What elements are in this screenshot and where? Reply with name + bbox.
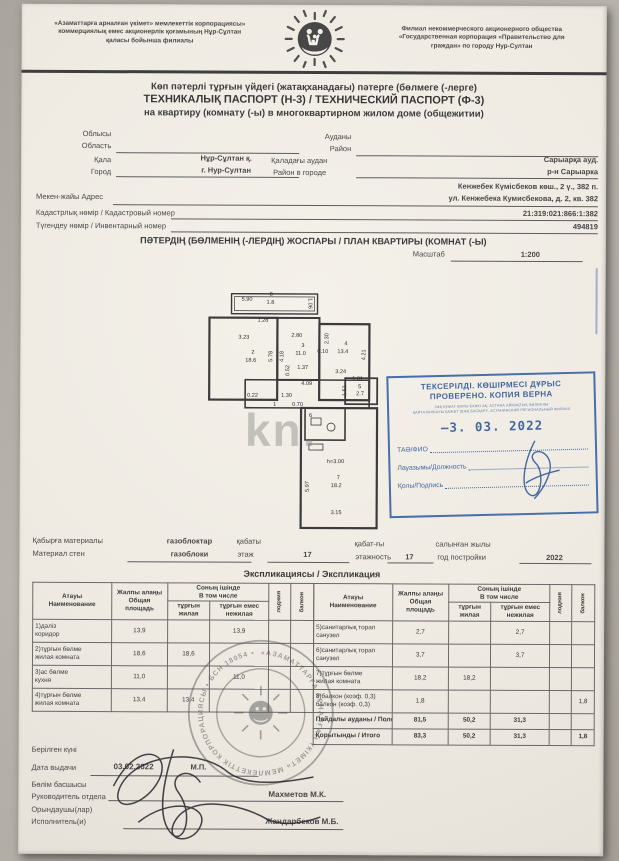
field-district-value-ru: р-н Сарыарка xyxy=(461,168,598,177)
stamp-signature-scribble xyxy=(505,432,567,503)
plan-dimension-label: 1.30 xyxy=(281,394,292,400)
field-address-value-ru: ул. Кенжебека Кумисбекова, д. 2, кв. 382 xyxy=(261,194,598,204)
plan-dimension-label: 4.21 xyxy=(362,349,368,360)
verification-stamp: ТЕКСЕРІЛДІ. КӨШІРМЕСІ ДҰРЫС ПРОВЕРЕНО. К… xyxy=(386,371,598,518)
cell-loggia xyxy=(549,667,572,690)
plan-dimension-label: 3.15 xyxy=(331,511,342,517)
floor-value: 17 xyxy=(267,551,347,560)
explication-header: Атауы Наименование Жалпы алаңы Общая пло… xyxy=(33,582,314,620)
scale-line xyxy=(451,261,583,263)
cell-nonliving xyxy=(490,667,549,690)
plan-dimension-label: 5.97 xyxy=(306,481,312,492)
plan-dimension-label: 3.24 xyxy=(335,370,346,376)
plan-dimension-label: h=3.00 xyxy=(327,460,344,466)
cell-nonliving: 31,3 xyxy=(490,713,549,729)
cell-total: 11,0 xyxy=(111,665,167,688)
wall-material-value-ru: газоблоки xyxy=(129,550,249,559)
year-label-kk: салынған жылы xyxy=(435,541,490,550)
header-divider xyxy=(22,70,607,75)
plan-dimension-label: 18.6 xyxy=(245,359,256,365)
year-line xyxy=(519,563,591,564)
cell-total: 81,5 xyxy=(392,713,448,729)
plan-dimension-label: 5 xyxy=(358,385,361,391)
field-city-value-ru: г. Нур-Султан xyxy=(161,166,291,175)
loggia-label: лоджия xyxy=(557,592,564,614)
cell-name: 1)дәліз коридор xyxy=(33,619,112,642)
plan-dimension-label: 0.10 xyxy=(317,350,328,356)
col-living-header: тұрғын жилая xyxy=(449,602,491,621)
field-cadastral-line xyxy=(171,218,598,221)
balcony-label: балкон xyxy=(299,592,306,612)
col-including-header: Соның ішінде В том числе xyxy=(449,584,550,603)
plan-dimension-label: 2 xyxy=(251,351,254,357)
col-balcony-header: балкон xyxy=(572,585,595,622)
field-city-label-kk: Қала xyxy=(31,156,111,165)
cell-living: 50,2 xyxy=(448,713,490,729)
stamp-date-dash: – xyxy=(441,420,450,435)
cell-living xyxy=(448,621,490,644)
cell-total: 2,7 xyxy=(392,621,448,644)
field-inventory-line xyxy=(171,231,598,234)
field-cadastral-label: Кадастрлық нөмір / Кадастровый номер xyxy=(36,209,175,218)
plan-dimension-label: 3.23 xyxy=(238,336,249,342)
handwritten-signatures xyxy=(78,734,378,850)
cell-loggia xyxy=(549,713,572,729)
cell-nonliving: 31,3 xyxy=(490,729,549,745)
cell-total: 1,8 xyxy=(392,690,448,713)
cell-total: 18,6 xyxy=(111,642,167,665)
cell-balcony xyxy=(572,713,595,729)
plan-dimension-label: 1.81 xyxy=(352,377,363,383)
explication-summary-row: Пайдалы ауданы / Полезная площадь81,550,… xyxy=(313,712,594,729)
field-district-label-kk: Қаладағы аудан xyxy=(271,157,327,166)
plan-dimension-label: 1.28 xyxy=(257,319,268,325)
cell-loggia xyxy=(549,644,572,667)
cell-total: 83,3 xyxy=(392,729,448,745)
scale-value: 1:200 xyxy=(521,251,540,260)
col-balcony-header: балкон xyxy=(291,583,314,620)
plan-dimension-label: 1.51 xyxy=(343,385,349,396)
explication-row: 5)санитарлық торап санузел2,72,7 xyxy=(314,620,595,644)
col-nonliving-header: тұрғын емес нежилая xyxy=(210,601,269,620)
plan-dimension-label: 4.18 xyxy=(280,351,286,362)
cell-living xyxy=(448,690,490,713)
field-raion-label-ru: Район xyxy=(291,145,351,154)
cell-nonliving xyxy=(490,690,549,713)
stamp-fio-label: ТАӘ/ФИО xyxy=(397,446,428,454)
field-raion-label-kk: Ауданы xyxy=(291,133,351,142)
cell-balcony: 1,8 xyxy=(572,729,595,745)
col-name-header: Атауы Наименование xyxy=(314,584,393,621)
kn-kz-watermark: kn. xyxy=(245,403,318,457)
cell-nonliving: 2,7 xyxy=(491,621,550,644)
org-name-russian: Филиал некоммерческого акционерного обще… xyxy=(367,25,597,51)
plan-dimension-label: 4.09 xyxy=(301,382,312,388)
field-district-label-ru: Район в городе xyxy=(273,169,326,178)
field-oblast-label-ru: Область xyxy=(31,142,111,151)
cell-living xyxy=(448,644,490,667)
gov-for-citizens-logo xyxy=(272,9,358,69)
field-city-line xyxy=(116,176,299,178)
blue-edge-mark xyxy=(595,268,597,334)
col-living-header: тұрғын жилая xyxy=(168,601,210,620)
cell-balcony xyxy=(572,667,595,690)
cell-loggia xyxy=(550,621,573,644)
cell-loggia xyxy=(549,690,572,713)
sun-family-hand-icon xyxy=(272,9,358,69)
explication-row: 7)тұрғын бөлме жилая комната18,218,2 xyxy=(313,666,594,690)
col-loggia-header: лоджия xyxy=(269,583,292,620)
field-address-line xyxy=(113,204,598,207)
document-title-ru: на квартиру (комнату (-ы) в многоквартир… xyxy=(21,107,606,121)
floors-line xyxy=(387,562,433,563)
floor-line xyxy=(267,562,349,563)
plan-dimension-label: 2.30 xyxy=(325,333,331,344)
field-city-label-ru: Город xyxy=(31,168,111,177)
cell-name: 4)тұрғын бөлме жилая комната xyxy=(32,688,111,711)
cell-total: 3,7 xyxy=(392,644,448,667)
cell-nonliving: 3,7 xyxy=(490,644,549,667)
col-total-header: Жалпы алаңы Общая площадь xyxy=(392,584,448,621)
loggia-label: лоджия xyxy=(276,591,283,613)
field-oblast-label-kk: Облысы xyxy=(31,130,111,139)
cell-name: 2)тұрғын бөлме жилая комната xyxy=(32,642,111,665)
plan-section-title: ПӘТЕРДІҢ (БӨЛМЕНІҢ (-ЛЕРДІҢ) ЖОСПАРЫ / П… xyxy=(21,235,606,248)
document-page: «Азаматтарға арналған үкімет» мемлекетті… xyxy=(18,4,607,857)
cell-balcony xyxy=(572,644,595,667)
col-name-header: Атауы Наименование xyxy=(33,582,112,619)
cell-loggia xyxy=(549,729,572,745)
plan-dimension-label: 13.4 xyxy=(337,350,348,356)
col-nonliving-header: тұрғын емес нежилая xyxy=(491,603,550,622)
cell-living: 18,2 xyxy=(448,667,490,690)
stamp-position-label: Лауазымы/Должность xyxy=(397,463,466,472)
plan-dimension-label: 4 xyxy=(344,342,347,348)
year-label-ru: год постройки xyxy=(437,554,486,563)
screenshot-root: «Азаматтарға арналған үкімет» мемлекетті… xyxy=(0,0,619,861)
cell-balcony xyxy=(572,621,595,644)
cell-total: 18,2 xyxy=(392,667,448,690)
cell-total: 13,4 xyxy=(111,688,167,711)
col-total-header: Жалпы алаңы Общая площадь xyxy=(111,583,167,620)
col-including-header: Соның ішінде В том числе xyxy=(168,583,269,602)
scale-label: Масштаб xyxy=(413,250,445,259)
plan-dimension-label: 18.2 xyxy=(331,484,342,490)
floor-label-ru: этаж xyxy=(237,551,253,560)
plan-dimension-label: 0.52 xyxy=(286,365,292,376)
issued-date-label-ru: Дата выдачи xyxy=(32,764,77,773)
plan-dimension-label: 1.8 xyxy=(267,301,275,307)
wall-material-value-kk: газоблоктар xyxy=(129,537,249,546)
explication-row: 8)балкон (коэф. 0,3) балкон (коэф. 0,3)1… xyxy=(313,689,594,713)
floors-label-kk: қабат-ғы xyxy=(354,540,384,549)
plan-dimension-label: 8 xyxy=(270,293,273,299)
explication-section-title: Экспликациясы / Экспликация xyxy=(19,568,604,581)
field-cadastral-value: 21:319:021:866:1:382 xyxy=(401,209,598,218)
org-name-kazakh: «Азаматтарға арналған үкімет» мемлекетті… xyxy=(34,20,266,46)
explication-right-half: Атауы Наименование Жалпы алаңы Общая пло… xyxy=(313,583,596,746)
floor-label-kk: қабаты xyxy=(236,538,260,547)
field-inventory-value: 494819 xyxy=(401,222,598,231)
field-address-label: Мекен-жайы Адрес xyxy=(36,193,103,202)
plan-dimension-label: 5.78 xyxy=(269,351,275,362)
plan-dimension-label: 0.22 xyxy=(247,394,258,400)
plan-dimension-label: 1.06 xyxy=(306,298,312,309)
cell-living: 50,2 xyxy=(448,729,490,745)
plan-dimension-label: 2.7 xyxy=(356,392,364,398)
cell-balcony: 1,8 xyxy=(572,690,595,713)
floors-label-ru: этажность xyxy=(355,553,391,562)
floors-value: 17 xyxy=(387,553,431,562)
field-inventory-label: Түгендеу нөмір / Инвентарный номер xyxy=(36,222,166,231)
plan-dimension-label: 2.80 xyxy=(291,334,302,340)
col-loggia-header: лоджия xyxy=(550,585,573,622)
balcony-label: балкон xyxy=(580,593,587,613)
field-address-value-kk: Кенжебек Күмісбеков көш., 2 ү., 382 п. xyxy=(261,182,598,192)
plan-dimension-label: 7 xyxy=(337,476,340,482)
field-district-value-kk: Сарыарқа ауд. xyxy=(461,156,598,165)
field-district-line xyxy=(356,177,598,179)
document-title-main: ТЕХНИКАЛЫҚ ПАСПОРТ (Н-3) / ТЕХНИЧЕСКИЙ П… xyxy=(21,93,606,108)
plan-dimension-label: 5.90 xyxy=(242,298,253,304)
issued-date-label-kk: Берілген күні xyxy=(32,746,77,755)
wall-material-label-ru: Материал стен xyxy=(32,550,84,559)
plan-dimension-label: 11.0 xyxy=(295,352,306,358)
wall-material-label-kk: Қабырға материалы xyxy=(32,537,102,546)
plan-dimension-label: 3 xyxy=(301,344,304,350)
stamp-signature-label: Қолы/Подпись xyxy=(398,482,443,490)
year-value: 2022 xyxy=(519,554,589,563)
cell-name: 3)ас бөлме кухня xyxy=(32,665,111,688)
cell-total: 13,9 xyxy=(111,619,167,642)
explication-header: Атауы Наименование Жалпы алаңы Общая пло… xyxy=(314,584,595,622)
explication-row: 6)санитарлық торап санузел3,73,7 xyxy=(313,643,594,667)
wall-material-line xyxy=(127,561,251,563)
plan-dimension-label: 1.37 xyxy=(297,366,308,372)
